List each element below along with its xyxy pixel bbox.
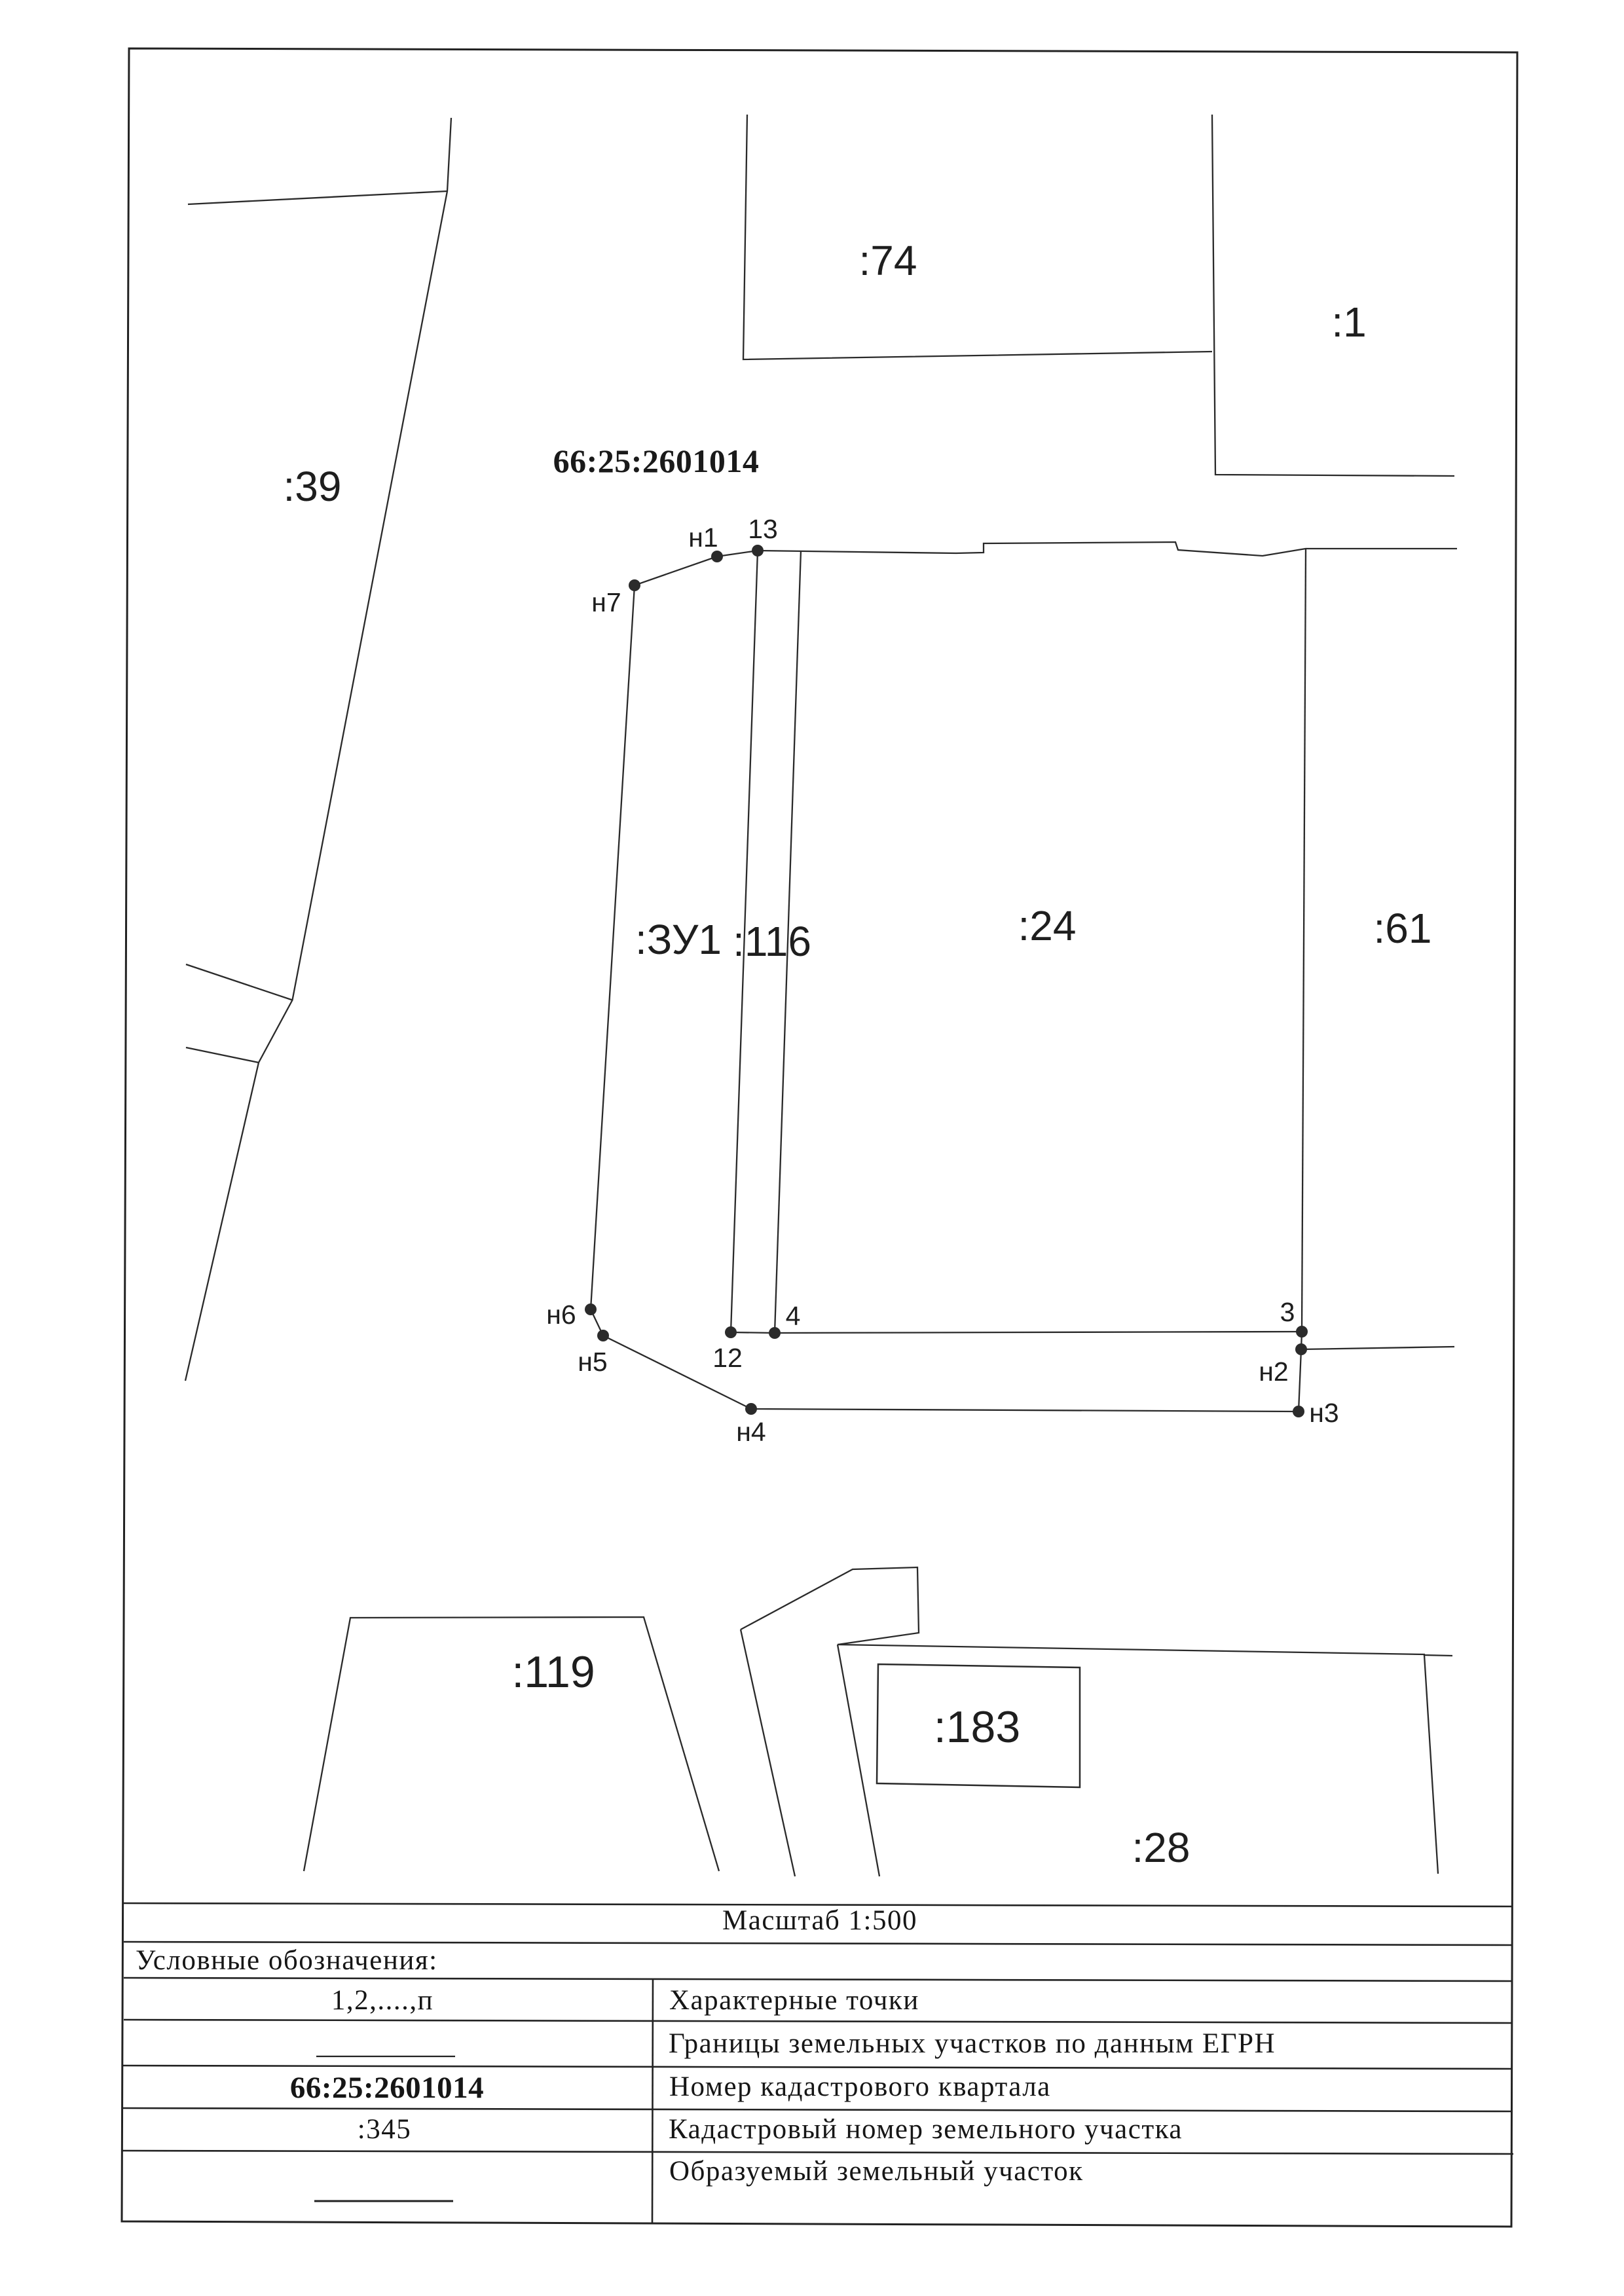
svg-text::39: :39 (284, 463, 342, 510)
svg-text::116: :116 (733, 918, 811, 965)
svg-text::183: :183 (934, 1702, 1020, 1752)
svg-text::119: :119 (511, 1647, 595, 1697)
svg-text:Образуемый земельный участок: Образуемый земельный участок (669, 2156, 1084, 2187)
svg-text:Характерные точки: Характерные точки (669, 1985, 919, 2016)
svg-text:66:25:2601014: 66:25:2601014 (553, 443, 760, 479)
svg-text:Границы земельных участков по: Границы земельных участков по данным ЕГР… (669, 2028, 1276, 2059)
svg-text:н4: н4 (736, 1417, 766, 1447)
svg-text::28: :28 (1132, 1824, 1190, 1871)
svg-text:н6: н6 (546, 1300, 576, 1330)
svg-text:66:25:2601014: 66:25:2601014 (290, 2071, 484, 2105)
svg-text::61: :61 (1374, 905, 1432, 952)
svg-text:12: 12 (712, 1343, 743, 1373)
svg-text:Условные обозначения:: Условные обозначения: (136, 1945, 438, 1976)
svg-text::ЗУ1: :ЗУ1 (635, 916, 722, 963)
svg-text::345: :345 (358, 2114, 411, 2145)
svg-text:Кадастровый номер земельного у: Кадастровый номер земельного участка (669, 2114, 1183, 2145)
svg-text:Масштаб 1:500: Масштаб 1:500 (722, 1905, 917, 1936)
svg-text::1: :1 (1331, 299, 1366, 346)
svg-text:н5: н5 (578, 1347, 607, 1377)
svg-text:3: 3 (1280, 1297, 1295, 1327)
svg-text:Номер кадастрового квартала: Номер кадастрового квартала (669, 2071, 1051, 2102)
svg-text::74: :74 (859, 237, 917, 284)
svg-text:4: 4 (786, 1301, 801, 1331)
svg-text:н2: н2 (1259, 1357, 1288, 1387)
svg-text:н7: н7 (591, 587, 621, 617)
svg-text::24: :24 (1018, 902, 1077, 949)
svg-text:н3: н3 (1309, 1398, 1338, 1428)
svg-text:1,2,....,п: 1,2,....,п (331, 1985, 434, 2016)
svg-text:н1: н1 (688, 522, 718, 553)
svg-text:13: 13 (748, 514, 778, 544)
